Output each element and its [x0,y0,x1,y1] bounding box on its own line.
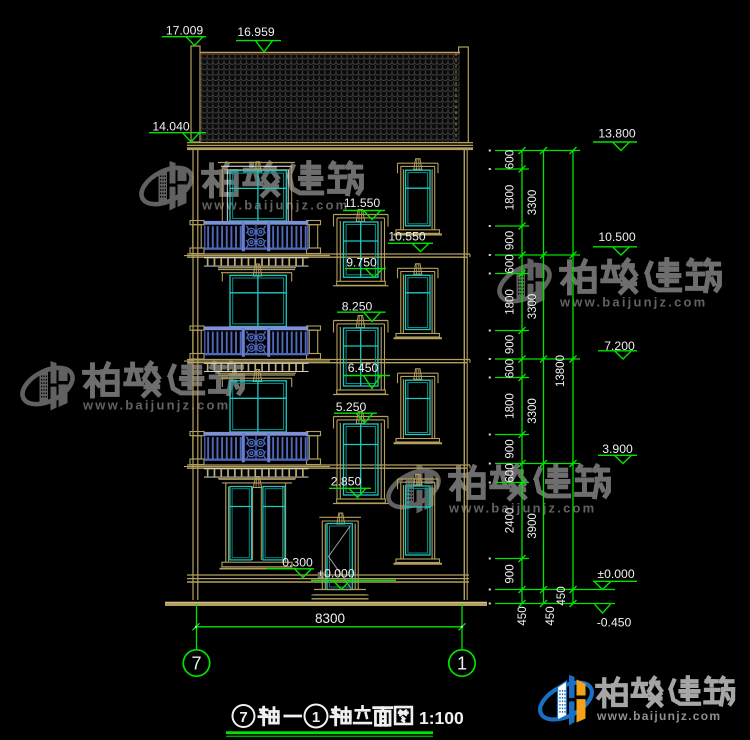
svg-text:www.baijunjz.com: www.baijunjz.com [201,198,349,213]
svg-text:900: 900 [505,439,517,458]
svg-text:3300: 3300 [527,398,539,424]
svg-text:8.250: 8.250 [342,300,373,314]
svg-text:8300: 8300 [315,611,345,626]
svg-text:www.baijunjz.com: www.baijunjz.com [596,709,721,723]
svg-text:1: 1 [312,709,320,726]
svg-text:2.850: 2.850 [331,475,362,489]
svg-text:14.040: 14.040 [152,120,189,134]
svg-text:10.550: 10.550 [388,230,425,244]
svg-text:17.009: 17.009 [166,24,203,38]
svg-text:3.900: 3.900 [602,442,633,456]
svg-text:2400: 2400 [505,508,517,534]
svg-text:7: 7 [239,709,247,726]
svg-text:-0.450: -0.450 [597,616,632,630]
svg-text:11.550: 11.550 [344,196,381,210]
svg-text:1800: 1800 [505,185,517,211]
svg-text:7: 7 [191,654,201,674]
svg-text:450: 450 [517,606,529,625]
svg-text:5.250: 5.250 [336,400,367,414]
svg-text:1: 1 [457,654,467,674]
svg-text:900: 900 [505,231,517,250]
svg-text:9.750: 9.750 [346,256,377,270]
svg-text:900: 900 [505,335,517,354]
svg-text:1:100: 1:100 [419,708,464,728]
svg-text:www.baijunjz.com: www.baijunjz.com [82,398,230,413]
svg-text:450: 450 [556,586,568,605]
svg-text:3300: 3300 [527,294,539,320]
svg-text:13800: 13800 [555,355,567,387]
svg-text:600: 600 [505,254,517,273]
svg-text:1800: 1800 [505,393,517,419]
svg-text:600: 600 [505,463,517,482]
svg-text:1800: 1800 [505,289,517,315]
svg-text:www.baijunjz.com: www.baijunjz.com [559,295,707,310]
svg-text:10.500: 10.500 [598,230,635,244]
svg-text:600: 600 [505,359,517,378]
svg-text:±0.000: ±0.000 [317,567,354,581]
svg-text:3300: 3300 [527,190,539,216]
svg-text:450: 450 [545,606,557,625]
svg-text:0.300: 0.300 [282,556,313,570]
svg-text:13.800: 13.800 [598,127,635,141]
svg-text:3900: 3900 [527,513,539,539]
svg-text:±0.000: ±0.000 [597,567,634,581]
svg-text:16.959: 16.959 [237,25,274,39]
svg-text:900: 900 [505,564,517,583]
svg-text:6.450: 6.450 [348,361,379,375]
svg-text:600: 600 [505,150,517,169]
